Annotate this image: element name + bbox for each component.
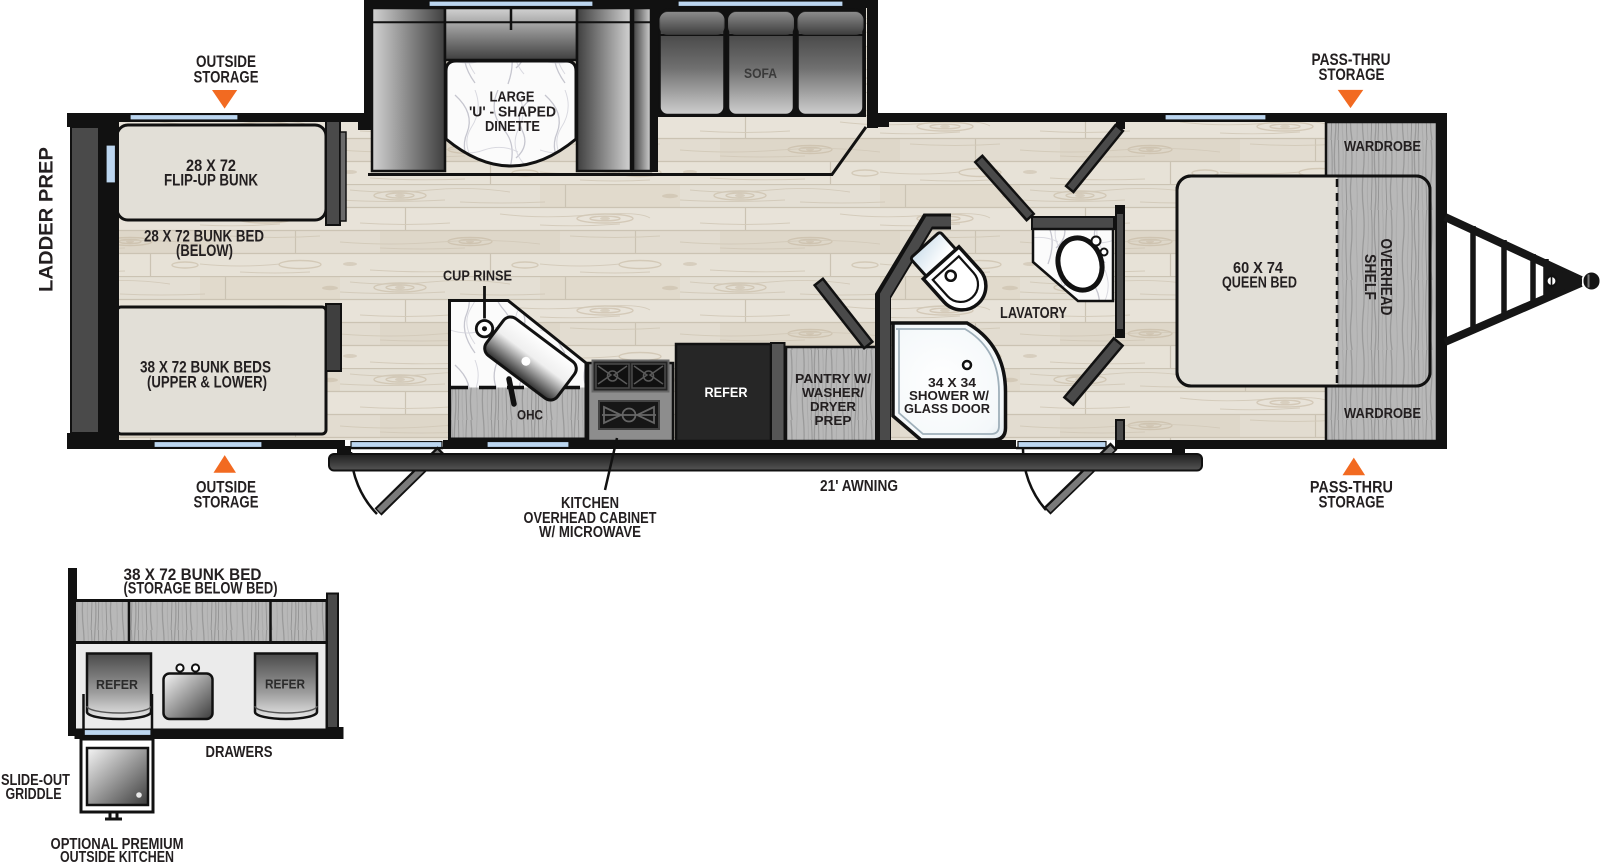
svg-text:REFER: REFER	[265, 677, 306, 692]
svg-text:OVERHEAD: OVERHEAD	[1377, 239, 1394, 316]
svg-text:GRIDDLE: GRIDDLE	[6, 786, 62, 803]
svg-text:(BELOW): (BELOW)	[176, 242, 233, 260]
svg-text:SOFA: SOFA	[744, 66, 777, 81]
svg-text:PANTRY W/: PANTRY W/	[795, 371, 871, 386]
svg-text:OUTSIDE KITCHEN: OUTSIDE KITCHEN	[60, 849, 174, 864]
svg-text:W/ MICROWAVE: W/ MICROWAVE	[539, 524, 641, 541]
svg-text:STORAGE: STORAGE	[194, 68, 259, 87]
svg-text:STORAGE: STORAGE	[1319, 493, 1385, 512]
svg-text:REFER: REFER	[705, 385, 748, 400]
svg-text:WASHER/: WASHER/	[802, 385, 864, 400]
svg-text:PREP: PREP	[815, 413, 852, 428]
svg-text:LAVATORY: LAVATORY	[1000, 305, 1067, 322]
svg-text:FLIP-UP BUNK: FLIP-UP BUNK	[164, 172, 258, 190]
svg-text:CUP RINSE: CUP RINSE	[443, 268, 512, 285]
svg-text:LADDER PREP: LADDER PREP	[37, 147, 58, 292]
svg-text:21' AWNING: 21' AWNING	[820, 478, 898, 495]
svg-text:DRAWERS: DRAWERS	[206, 744, 273, 761]
svg-text:SHELF: SHELF	[1361, 254, 1378, 300]
svg-text:LARGE: LARGE	[490, 90, 535, 106]
svg-text:GLASS DOOR: GLASS DOOR	[904, 401, 991, 416]
svg-text:REFER: REFER	[96, 677, 139, 692]
svg-text:DRYER: DRYER	[810, 399, 857, 414]
svg-text:(STORAGE BELOW BED): (STORAGE BELOW BED)	[124, 580, 278, 598]
svg-text:WARDROBE: WARDROBE	[1344, 405, 1421, 422]
svg-text:WARDROBE: WARDROBE	[1344, 138, 1421, 155]
svg-text:STORAGE: STORAGE	[1319, 65, 1385, 84]
svg-text:DINETTE: DINETTE	[485, 119, 540, 135]
svg-text:STORAGE: STORAGE	[194, 493, 259, 512]
svg-text:OHC: OHC	[517, 408, 543, 423]
svg-text:(UPPER & LOWER): (UPPER & LOWER)	[147, 374, 267, 392]
svg-text:QUEEN BED: QUEEN BED	[1222, 275, 1297, 292]
